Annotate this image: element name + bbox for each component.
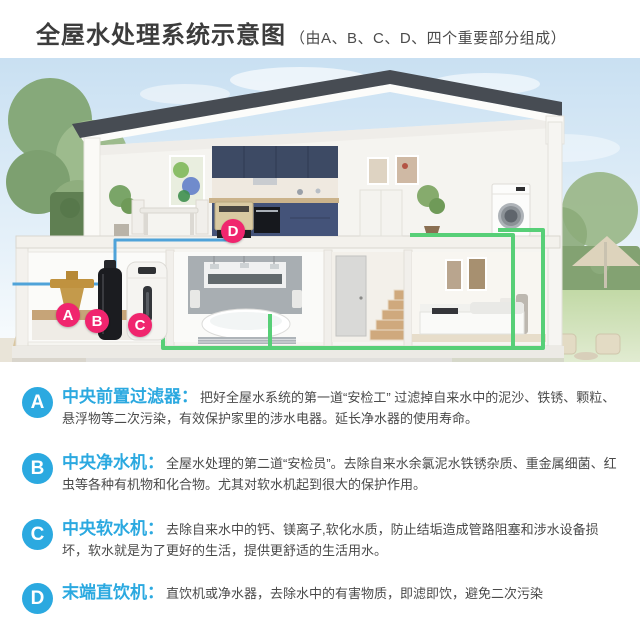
page-subtitle: （由A、B、C、D、四个重要部分组成） [290,27,566,48]
house-illustration: A B C D [0,58,640,380]
header-inner: 全屋水处理系统示意图 （由A、B、C、D、四个重要部分组成） [0,15,566,58]
right-wall [548,122,562,346]
section-c-title: 中央软水机： [62,519,164,538]
wall-divider [404,250,412,346]
section-d-text: 末端直饮机：直饮机或净水器，去除水中的有害物质，即滤即饮，避免二次污染 [62,582,543,604]
marker-b-badge: B [85,309,109,333]
wall-picture [446,260,462,290]
badge-c: C [22,519,53,550]
left-upper-wall [84,138,100,236]
towel-rack [292,290,302,308]
section-d-title: 末端直饮机： [62,583,164,602]
section-a: A 中央前置过滤器：把好全屋水系统的第一道“安检工” 过滤掉自来水中的泥沙、铁锈… [22,386,620,429]
floor-slab [16,236,560,248]
range-hood [253,178,277,185]
garden-chair [596,334,620,354]
badge-b: B [22,453,53,484]
section-c-text: 中央软水机：去除自来水中的钙、镁离子,软化水质，防止结垢造成管路阻塞和涉水设备损… [62,518,620,561]
section-d: D 末端直饮机：直饮机或净水器，去除水中的有害物质，即滤即饮，避免二次污染 [22,582,620,614]
badge-d: D [22,583,53,614]
wall-divider [324,250,332,346]
marker-c-badge: C [128,313,152,337]
wall-picture [468,258,486,290]
page-title: 全屋水处理系统示意图 [36,15,286,50]
marker-a-badge: A [56,303,80,327]
header: 全屋水处理系统示意图 （由A、B、C、D、四个重要部分组成） [0,0,640,58]
left-lower-wall [16,248,28,346]
towel-rack [190,290,200,308]
section-c: C 中央软水机：去除自来水中的钙、镁离子,软化水质，防止结垢造成管路阻塞和涉水设… [22,518,620,561]
section-d-body: 直饮机或净水器，去除水中的有害物质，即滤即饮，避免二次污染 [166,586,543,601]
section-b-title: 中央净水机： [62,453,164,472]
bathtub [202,309,290,339]
bath-rug [198,337,296,344]
section-b: B 中央净水机：全屋水处理的第二道“安检员”。去除自来水余氯泥水铁锈杂质、重金属… [22,452,620,495]
page: 全屋水处理系统示意图 （由A、B、C、D、四个重要部分组成） [0,0,640,620]
badge-a: A [22,387,53,418]
marker-d-badge: D [221,219,245,243]
upper-cabinets [212,146,338,178]
section-b-text: 中央净水机：全屋水处理的第二道“安检员”。去除自来水余氯泥水铁锈杂质、重金属细菌… [62,452,620,495]
painting [170,156,204,206]
door [336,256,366,336]
wall-picture [368,158,388,184]
section-a-text: 中央前置过滤器：把好全屋水系统的第一道“安检工” 过滤掉自来水中的泥沙、铁锈、颗… [62,386,620,429]
section-a-title: 中央前置过滤器： [62,387,198,406]
wall-picture [396,156,418,184]
ground-fade [0,362,640,380]
